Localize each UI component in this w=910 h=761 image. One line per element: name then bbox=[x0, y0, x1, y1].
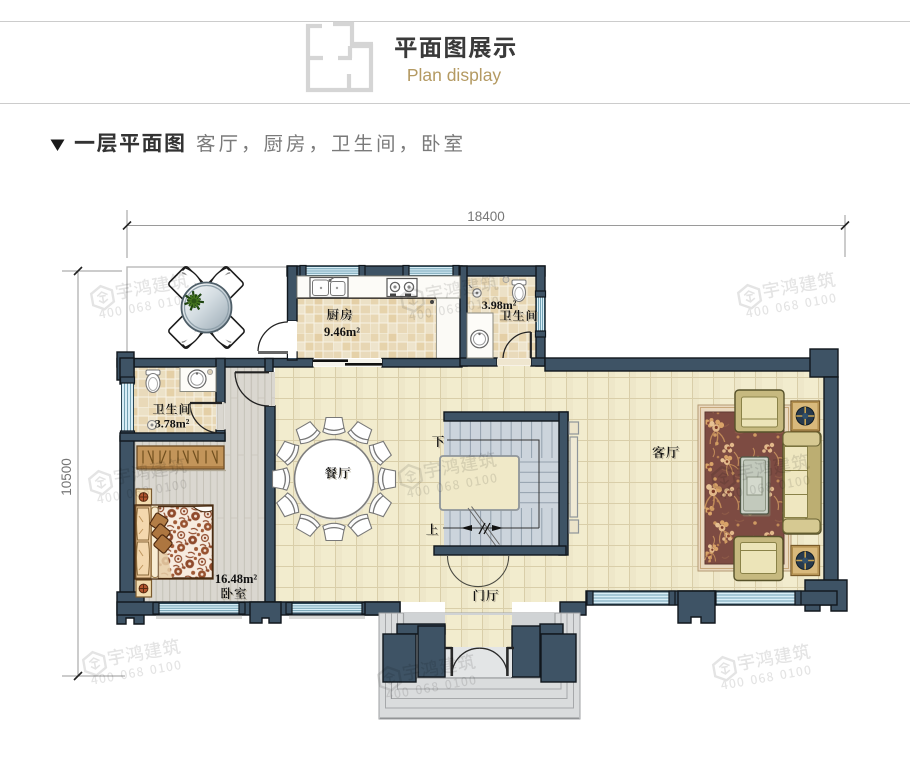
svg-text:3.98m²: 3.98m² bbox=[482, 298, 517, 312]
svg-text:3.78m²: 3.78m² bbox=[155, 417, 190, 431]
svg-text:16.48m²: 16.48m² bbox=[215, 572, 258, 586]
svg-text:10500: 10500 bbox=[59, 458, 74, 496]
svg-text:9.46m²: 9.46m² bbox=[324, 325, 360, 339]
svg-text:18400: 18400 bbox=[467, 209, 505, 224]
svg-text:Plan display: Plan display bbox=[407, 65, 502, 85]
